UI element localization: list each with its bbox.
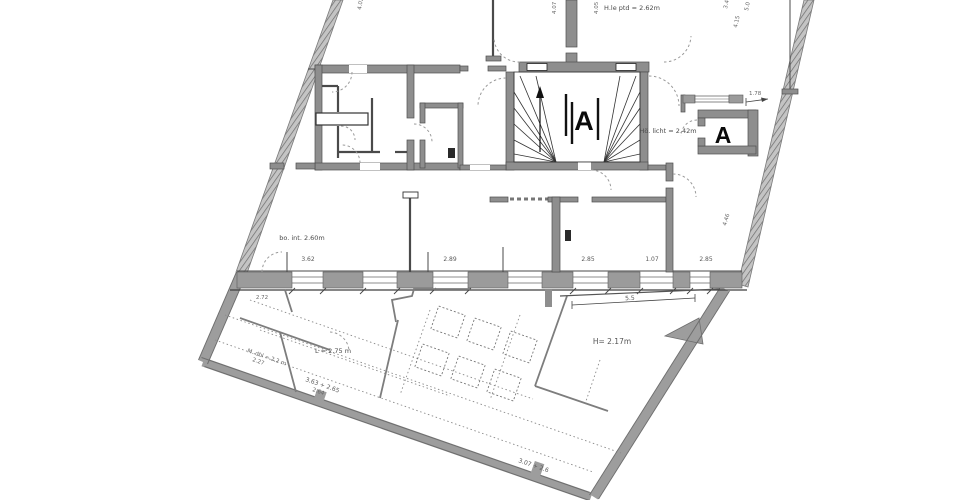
floor-plan-page: A A Hö. licht = 2.42m xyxy=(0,0,960,500)
dim-v5: 5.0 xyxy=(744,1,752,11)
length-note: L = 2.75 m xyxy=(315,347,351,355)
hall-height-note: H= 2.17m xyxy=(593,337,631,346)
dim-v2: 4.07 xyxy=(552,1,558,14)
shaft-label: A xyxy=(715,122,732,148)
door-gap xyxy=(360,163,380,170)
stair-up-arrow-icon xyxy=(536,86,544,152)
entry-door-leaf xyxy=(527,64,547,71)
stairwell: A xyxy=(506,62,649,170)
stair-height-note: Hö. licht = 2.42m xyxy=(639,127,696,135)
floor-plan-svg: A A Hö. licht = 2.42m xyxy=(0,0,960,500)
door-gap xyxy=(349,65,367,73)
dim-win-3: 2.85 xyxy=(581,256,595,263)
facade-window-band xyxy=(230,271,747,294)
bath-counter xyxy=(316,113,368,125)
dimension-ticks xyxy=(289,288,713,294)
stairwell-label: A xyxy=(574,106,594,136)
dim-win-4: 1.07 xyxy=(645,256,659,263)
dim-v3: 4.05 xyxy=(594,1,600,14)
wall-notch xyxy=(665,318,703,344)
lower-wing-outer-walls xyxy=(199,272,730,500)
kitchen-fixture xyxy=(448,148,455,158)
dim-v7: 4.46 xyxy=(722,213,731,227)
stair-door-gap xyxy=(578,162,591,170)
dim-v1: 4.02 xyxy=(357,0,365,10)
dim-span: 5.5 xyxy=(625,295,635,303)
stair-treads-left xyxy=(514,76,556,162)
dim-win-2: 2.89 xyxy=(443,256,457,263)
wall-stub xyxy=(545,289,552,307)
left-room-note: bo. int. 2.60m xyxy=(279,234,325,242)
dim-v4: 3.4 xyxy=(723,0,731,9)
dim-win-5: 2.85 xyxy=(699,256,713,263)
dim-lintel: 1.78 xyxy=(749,91,762,97)
lift-shaft: A xyxy=(698,110,758,156)
dim-low: 2.72 xyxy=(256,295,268,301)
skylight-grid xyxy=(415,306,537,401)
dim-v6: 4.15 xyxy=(733,15,742,29)
ceiling-note: H.le ptd = 2.62m xyxy=(604,4,660,12)
stair-treads-right xyxy=(604,76,640,162)
entry-door-leaf xyxy=(616,64,636,71)
door-jamb-flag xyxy=(403,192,418,198)
radiator xyxy=(565,230,571,241)
lintel-dimension xyxy=(746,98,768,107)
dim-win-1: 3.62 xyxy=(301,256,315,263)
